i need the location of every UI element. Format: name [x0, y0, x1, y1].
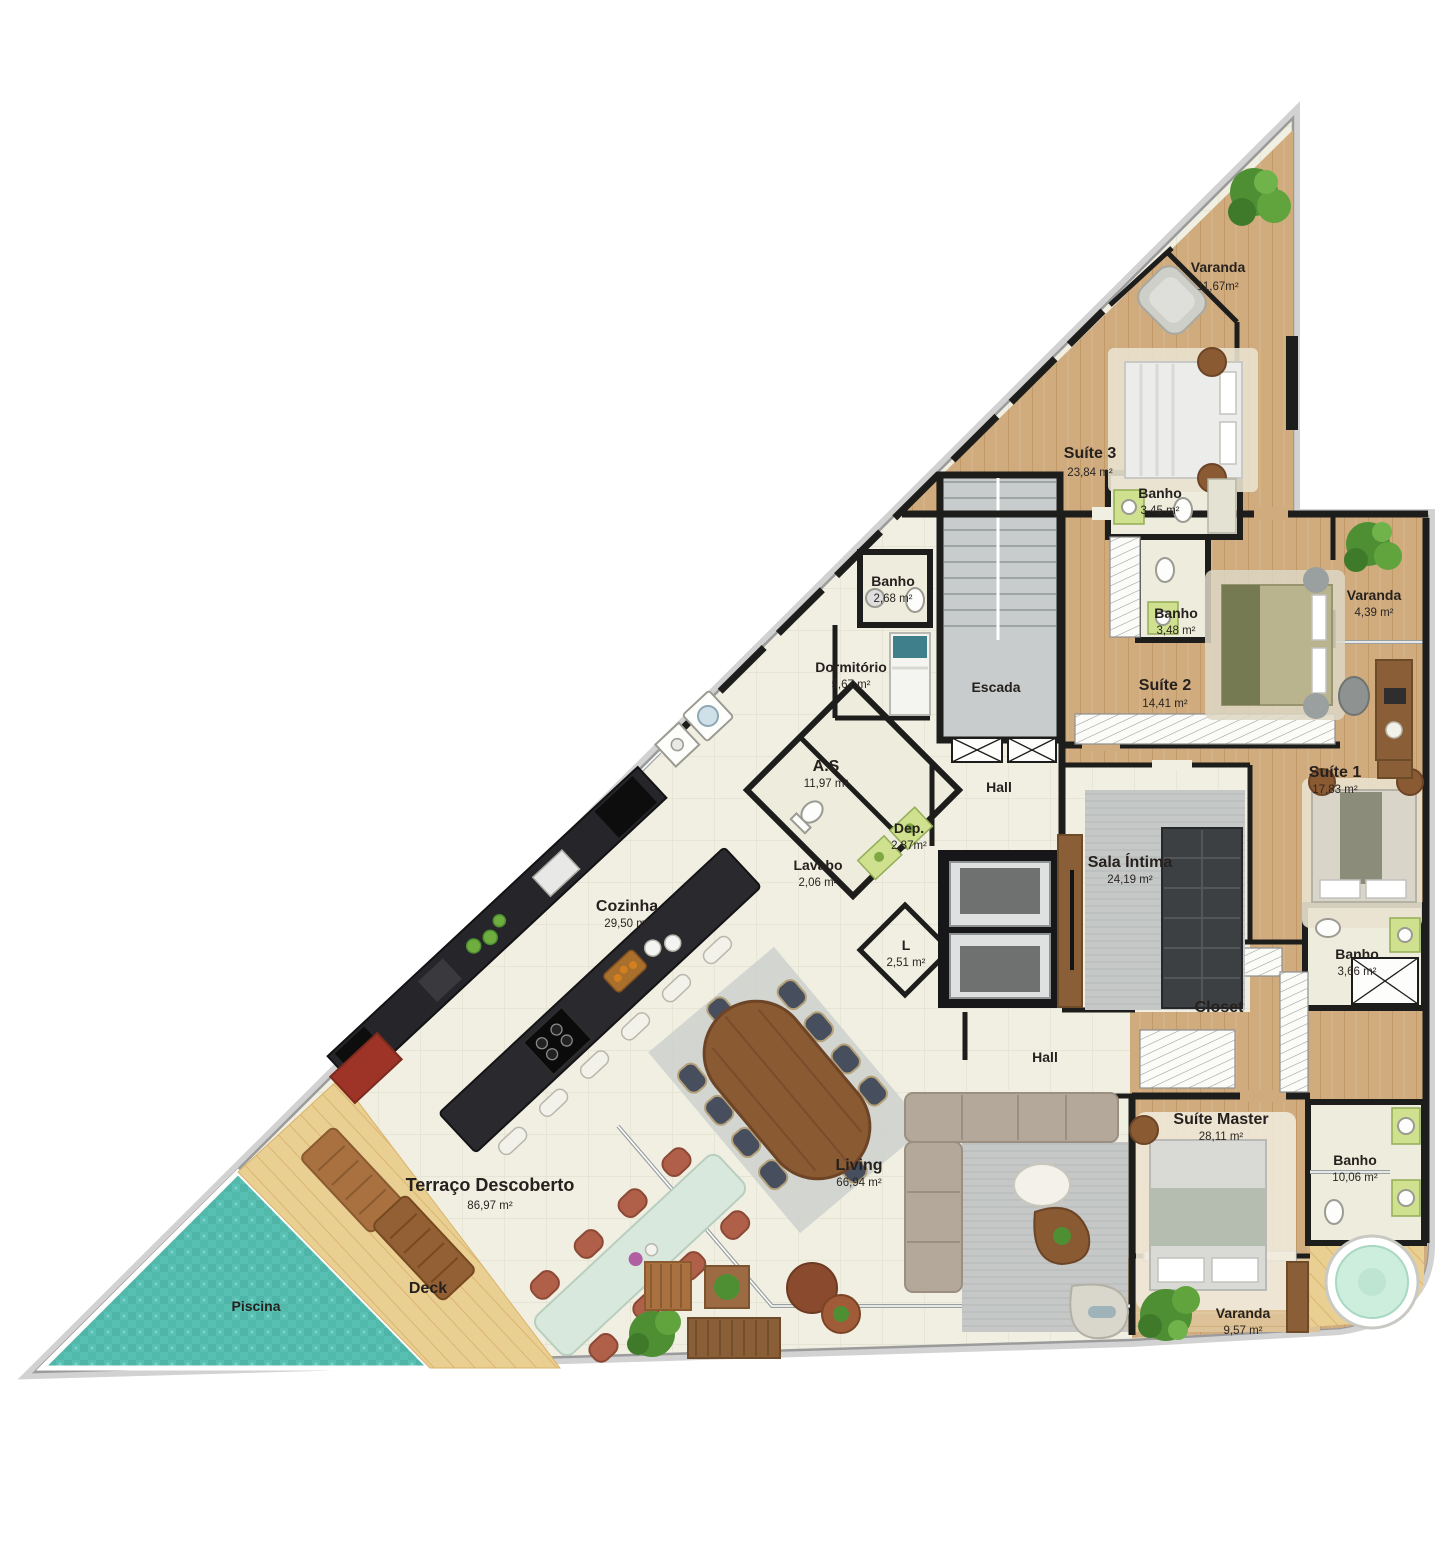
svg-text:14,41 m²: 14,41 m² [1142, 698, 1188, 710]
window-panel [1286, 336, 1298, 430]
bench [688, 1318, 780, 1358]
closet-shelf [1280, 972, 1308, 1092]
closet-shelf [1140, 1030, 1235, 1088]
room-label-cozinha: Cozinha 29,50 m² [596, 898, 658, 930]
nightstand [1198, 348, 1226, 376]
svg-text:3,48 m²: 3,48 m² [1157, 625, 1196, 637]
shower [1208, 479, 1236, 533]
svg-text:2,51 m²: 2,51 m² [887, 957, 926, 969]
floorplan-page: Varanda 11,67m² Suíte 3 23,84 m² Banho 3… [0, 0, 1443, 1542]
living-sofa [905, 1093, 1118, 1142]
svg-text:24,19 m²: 24,19 m² [1107, 874, 1153, 886]
plant-icon [714, 1274, 740, 1300]
room-label-suite-1: Suíte 1 17,83 m² [1309, 764, 1362, 796]
svg-text:11,97 m²: 11,97 m² [804, 778, 849, 790]
svg-text:3,66 m²: 3,66 m² [1338, 966, 1377, 978]
toilet [1156, 558, 1174, 582]
svg-text:17,83 m²: 17,83 m² [1312, 784, 1358, 796]
room-label-hall-inferior: Hall [1032, 1049, 1058, 1065]
svg-text:Escada: Escada [971, 679, 1020, 695]
svg-text:3,45 m²: 3,45 m² [1141, 505, 1180, 517]
svg-text:Suíte 1: Suíte 1 [1309, 764, 1362, 781]
nightstand [1130, 1116, 1158, 1144]
escada-block [940, 475, 1060, 762]
svg-text:Lavabo: Lavabo [793, 857, 842, 873]
svg-text:2,68 m²: 2,68 m² [874, 593, 913, 605]
svg-text:11,67m²: 11,67m² [1197, 281, 1239, 293]
room-label-deck: Deck [409, 1280, 447, 1297]
room-label-escada: Escada [971, 679, 1020, 695]
plant-icon [833, 1306, 849, 1322]
desk-chair [1339, 677, 1369, 715]
svg-text:Dep.: Dep. [894, 820, 924, 836]
svg-text:Living: Living [835, 1157, 882, 1174]
svg-text:Deck: Deck [409, 1280, 447, 1297]
dormitorio-bed [890, 633, 930, 715]
svg-text:Varanda: Varanda [1191, 259, 1246, 275]
svg-text:9,57 m²: 9,57 m² [1224, 1325, 1263, 1337]
svg-text:Banho: Banho [1335, 946, 1379, 962]
toilet [1325, 1200, 1343, 1224]
svg-text:86,97 m²: 86,97 m² [467, 1200, 513, 1212]
svg-text:Banho: Banho [871, 573, 915, 589]
svg-text:Suíte 2: Suíte 2 [1139, 677, 1192, 694]
svg-text:Terraço Descoberto: Terraço Descoberto [406, 1175, 575, 1195]
wood-divider [1287, 1262, 1308, 1332]
suite2-furniture [1205, 567, 1345, 720]
svg-text:Varanda: Varanda [1347, 587, 1402, 603]
svg-text:2,87m²: 2,87m² [891, 840, 927, 852]
floorplan-svg: Varanda 11,67m² Suíte 3 23,84 m² Banho 3… [0, 0, 1443, 1542]
svg-text:Hall: Hall [1032, 1049, 1058, 1065]
room-label-suite-2: Suíte 2 14,41 m² [1139, 677, 1192, 710]
svg-text:Banho: Banho [1333, 1152, 1377, 1168]
sala-intima-furniture [1058, 790, 1245, 1010]
svg-text:Closet: Closet [1195, 999, 1245, 1016]
svg-text:Banho: Banho [1154, 605, 1198, 621]
toilet [1316, 919, 1340, 937]
coffee-table [1014, 1164, 1070, 1206]
svg-text:23,84 m²: 23,84 m² [1067, 467, 1113, 479]
svg-text:Cozinha: Cozinha [596, 898, 658, 915]
svg-text:4,39 m²: 4,39 m² [1355, 607, 1394, 619]
svg-text:5,67 m²: 5,67 m² [832, 679, 871, 691]
svg-text:Dormitório: Dormitório [815, 659, 887, 675]
wardrobe-suite3 [1110, 537, 1140, 637]
svg-text:2,06 m²: 2,06 m² [799, 877, 838, 889]
svg-text:66,94 m²: 66,94 m² [836, 1177, 882, 1189]
plant-icon [1053, 1227, 1071, 1245]
svg-text:Suíte 3: Suíte 3 [1064, 445, 1117, 462]
room-label-living: Living 66,94 m² [835, 1157, 882, 1189]
svg-text:Suíte Master: Suíte Master [1173, 1111, 1268, 1128]
pouf [1303, 693, 1329, 719]
elevators [938, 850, 1062, 1008]
svg-text:Hall: Hall [986, 779, 1012, 795]
svg-text:A.S: A.S [813, 758, 840, 775]
room-label-closet: Closet [1195, 999, 1245, 1016]
svg-text:Sala Íntima: Sala Íntima [1088, 852, 1173, 871]
svg-text:10,06 m²: 10,06 m² [1332, 1172, 1378, 1184]
svg-text:28,11 m²: 28,11 m² [1199, 1131, 1244, 1143]
living-sofa [905, 1142, 962, 1292]
svg-text:29,50 m²: 29,50 m² [604, 918, 650, 930]
svg-text:L: L [902, 937, 911, 953]
svg-text:Piscina: Piscina [231, 1298, 280, 1314]
pouf [1303, 567, 1329, 593]
suite3-furniture [1108, 348, 1258, 492]
svg-text:Banho: Banho [1138, 485, 1182, 501]
room-label-hall-superior: Hall [986, 779, 1012, 795]
svg-text:Varanda: Varanda [1216, 1305, 1271, 1321]
room-label-piscina: Piscina [231, 1298, 280, 1314]
